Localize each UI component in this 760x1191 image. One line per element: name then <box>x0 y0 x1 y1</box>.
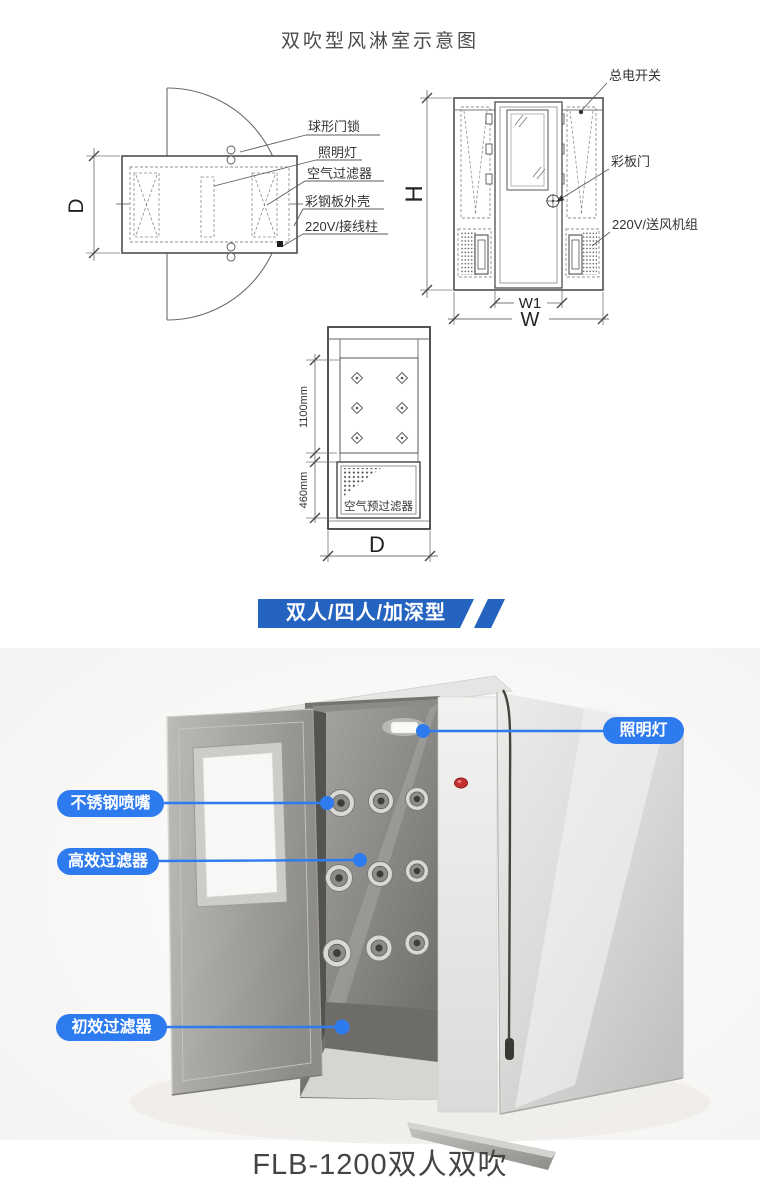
side-body <box>328 327 430 529</box>
front-left-fan <box>458 229 491 277</box>
front-label-main-switch: 总电开关 <box>609 68 661 83</box>
front-corner-column <box>438 697 497 1112</box>
plan-body <box>122 156 297 253</box>
diagram-title: 双吹型风淋室示意图 <box>0 26 760 53</box>
callout-light-pill: 照明灯 <box>603 717 684 744</box>
callout-hepa-pill: 高效过滤器 <box>57 848 159 875</box>
front-view-diagram: H 总电开关 彩板门 220V/送风机组 W1 W <box>401 68 698 331</box>
button-highlight <box>458 780 462 782</box>
plan-label-air-filter: 空气过滤器 <box>307 166 372 181</box>
plan-label-door-lock: 球形门锁 <box>308 119 360 134</box>
callout-nozzle-pill: 不锈钢喷嘴 <box>57 790 164 817</box>
diagram-and-photo-canvas: D 球形门锁 照明灯 空气过滤器 彩钢板外壳 220V/接线柱 <box>0 0 760 1191</box>
plan-label-shell: 彩钢板外壳 <box>305 194 370 209</box>
plan-terminal-block <box>277 241 283 247</box>
side-prefilter-label: 空气预过滤器 <box>344 499 413 513</box>
side-view-diagram: 空气预过滤器 1100mm 460mm D <box>298 327 438 562</box>
emergency-button[interactable] <box>455 778 468 788</box>
power-plug <box>505 1038 514 1060</box>
front-right-fan <box>566 229 599 277</box>
side-dim-depth-label: D <box>369 532 385 557</box>
door-window-glass <box>203 753 277 897</box>
front-dim-height-label: H <box>401 185 428 202</box>
front-label-blower: 220V/送风机组 <box>612 217 698 232</box>
side-dim-upper-label: 1100mm <box>298 386 310 428</box>
side-dim-lower-label: 460mm <box>298 472 310 509</box>
front-label-panel-door: 彩板门 <box>611 154 650 169</box>
front-dim-width-label: W <box>521 309 540 331</box>
plan-dim-depth-label: D <box>65 198 88 213</box>
plan-view-diagram: D 球形门锁 照明灯 空气过滤器 彩钢板外壳 220V/接线柱 <box>65 88 388 320</box>
product-detail-page: D 球形门锁 照明灯 空气过滤器 彩钢板外壳 220V/接线柱 <box>0 0 760 1191</box>
type-banner: 双人/四人/加深型 <box>258 599 474 628</box>
callout-prefilter-pill: 初效过滤器 <box>56 1014 167 1041</box>
plan-label-terminal: 220V/接线柱 <box>305 219 378 234</box>
ceiling-light-fixture <box>391 722 418 733</box>
plan-dim-depth <box>86 148 120 261</box>
product-model-caption: FLB-1200双人双吹 <box>0 1141 760 1183</box>
plan-label-light: 照明灯 <box>318 145 357 160</box>
